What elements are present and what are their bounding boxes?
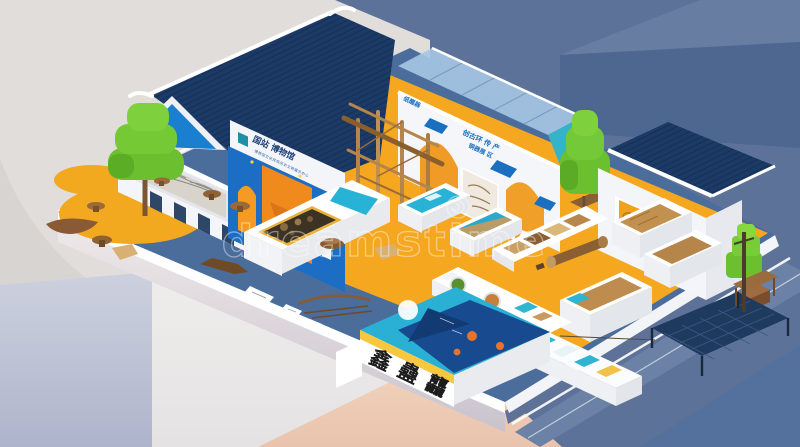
stock-illustration-museum-isometric: 国站 博物馆 博物馆文化民俗历史文物展示中心 创古环 传 产 铜	[0, 0, 800, 447]
museum-illustration: 国站 博物馆 博物馆文化民俗历史文物展示中心 创古环 传 产 铜	[0, 0, 800, 447]
background-lavender-block	[0, 272, 152, 447]
watermark-text: dreamstime	[222, 216, 549, 267]
front-display-sun	[398, 300, 418, 320]
